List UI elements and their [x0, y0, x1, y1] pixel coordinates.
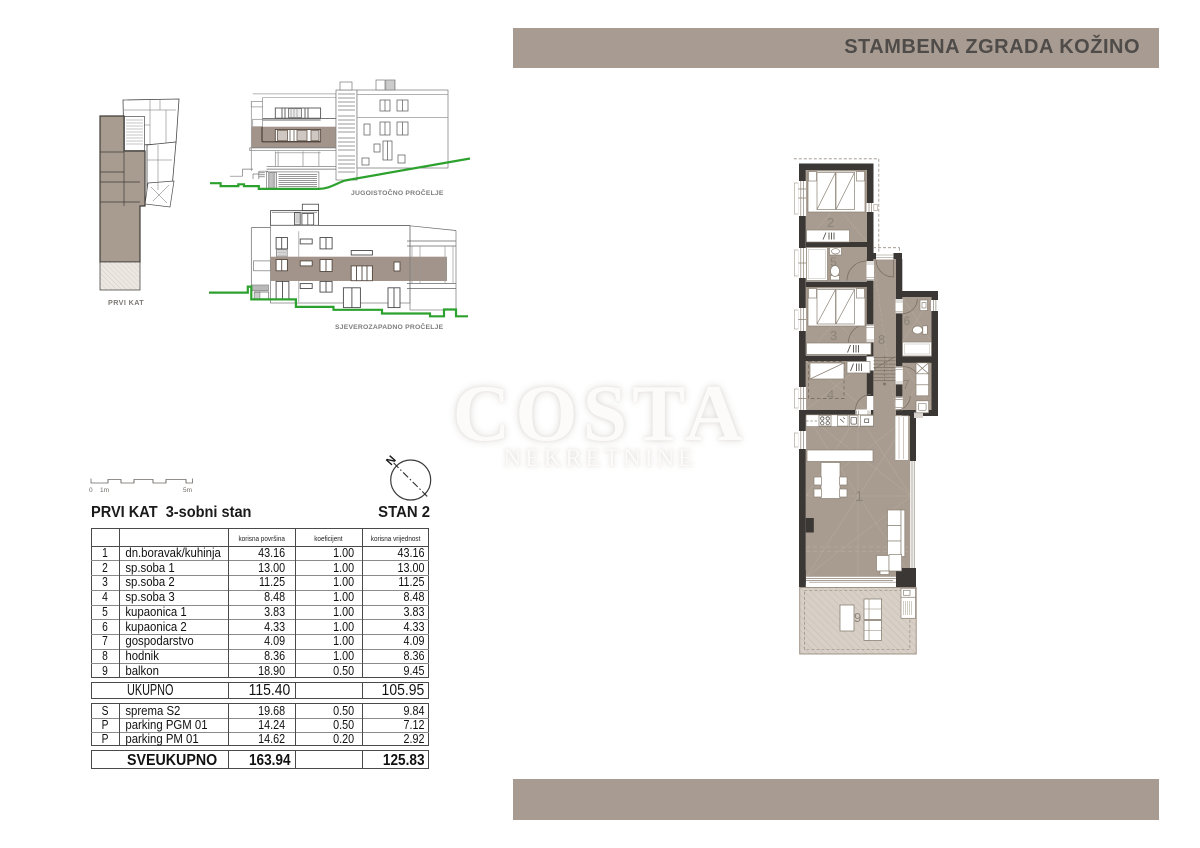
svg-text:4: 4 [827, 387, 834, 402]
svg-text:5: 5 [830, 255, 837, 269]
svg-text:5m: 5m [183, 487, 192, 494]
svg-text:6: 6 [904, 314, 911, 328]
svg-text:8: 8 [878, 332, 885, 347]
svg-text:2: 2 [827, 215, 834, 230]
svg-text:9: 9 [854, 610, 861, 625]
svg-text:3: 3 [830, 328, 837, 343]
svg-text:7: 7 [903, 377, 910, 392]
svg-text:1: 1 [855, 488, 863, 505]
svg-text:0: 0 [89, 487, 93, 494]
svg-text:1m: 1m [100, 487, 109, 494]
